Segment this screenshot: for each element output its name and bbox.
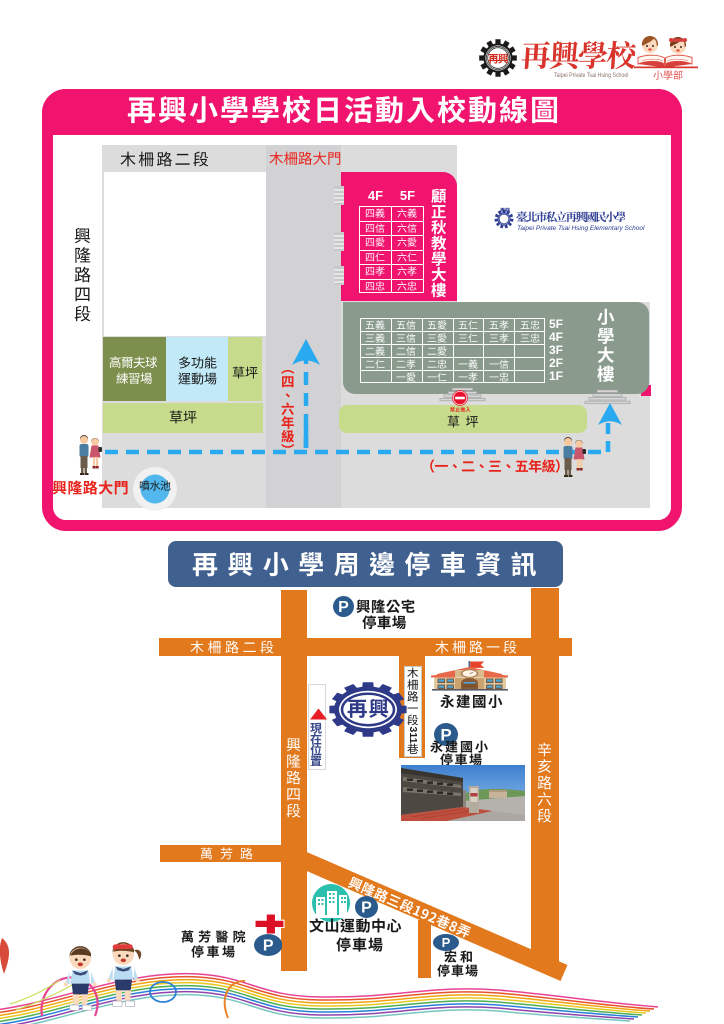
svg-text:P: P xyxy=(361,900,372,917)
svg-text:P: P xyxy=(338,599,349,616)
svg-text:311: 311 xyxy=(407,727,419,744)
